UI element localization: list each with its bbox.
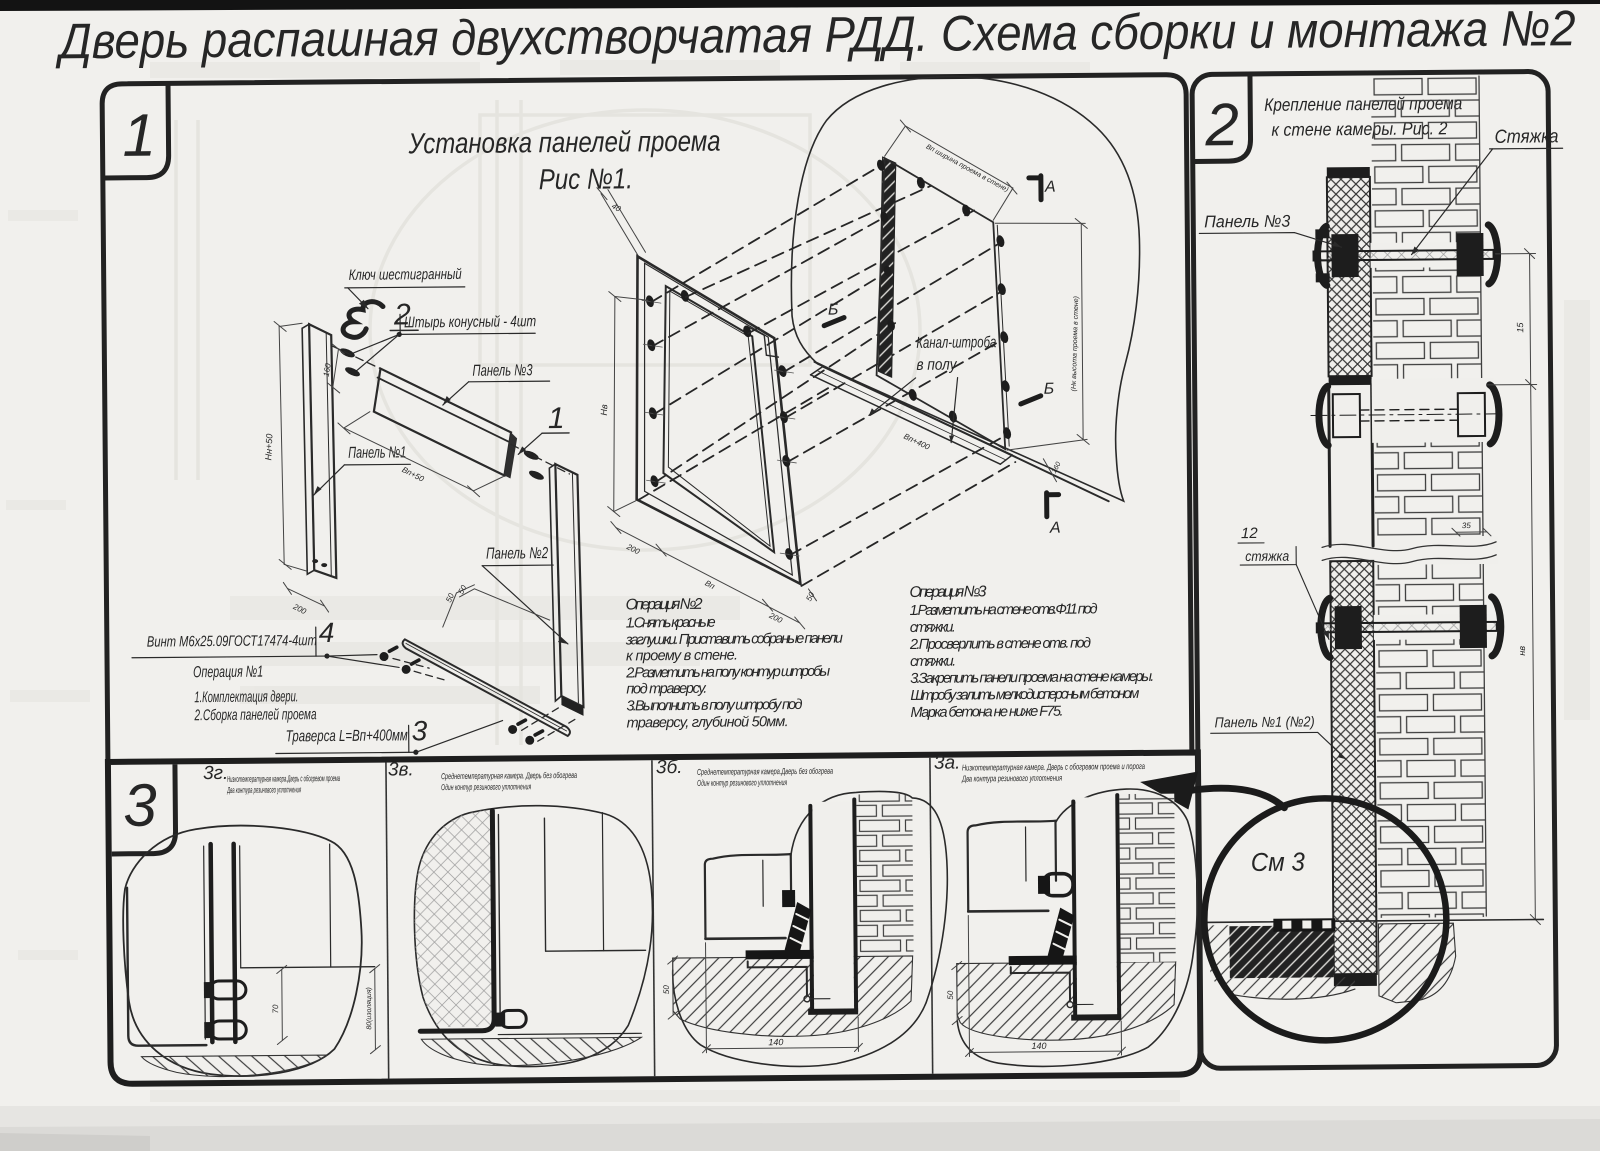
svg-text:Установка панелей проема: Установка панелей проема xyxy=(408,126,721,161)
svg-text:3в.: 3в. xyxy=(388,759,414,780)
svg-text:стяжки.: стяжки. xyxy=(910,654,956,670)
svg-text:Низкотемпературная камера. Две: Низкотемпературная камера. Дверь с обогр… xyxy=(962,761,1145,773)
svg-text:3.Закрепить панели проема на с: 3.Закрепить панели проема на стене камер… xyxy=(910,669,1154,687)
svg-text:Панель №3: Панель №3 xyxy=(1204,212,1291,232)
svg-text:Панель №2: Панель №2 xyxy=(486,545,548,563)
svg-text:Штробу залить мелкодисперсным: Штробу залить мелкодисперсным бетоном xyxy=(910,686,1139,704)
svg-text:4: 4 xyxy=(319,617,335,648)
svg-text:Панель №1: Панель №1 xyxy=(348,444,406,462)
svg-text:Марка бетона не ниже F75.: Марка бетона не ниже F75. xyxy=(910,704,1063,721)
svg-text:Вп ширина проема в стене): Вп ширина проема в стене) xyxy=(925,143,1010,193)
svg-text:А: А xyxy=(1044,179,1056,196)
svg-text:под траверсу.: под траверсу. xyxy=(626,681,707,698)
svg-text:1: 1 xyxy=(122,102,156,169)
svg-text:3б.: 3б. xyxy=(656,757,683,778)
svg-text:стяжка: стяжка xyxy=(1245,548,1289,564)
svg-text:Б: Б xyxy=(828,302,839,319)
svg-text:Панель №3: Панель №3 xyxy=(472,362,532,380)
svg-text:200: 200 xyxy=(767,611,784,626)
svg-text:Вп: Вп xyxy=(703,579,716,592)
svg-text:Низкотемпературная камера.Двер: Низкотемпературная камера.Дверь с обогре… xyxy=(227,773,340,784)
svg-text:в полу: в полу xyxy=(916,357,957,374)
svg-text:Два контура резинового уплотне: Два контура резинового уплотнения xyxy=(961,773,1062,784)
svg-text:Вп+50: Вп+50 xyxy=(400,465,425,484)
svg-text:Операция №3: Операция №3 xyxy=(909,583,987,601)
svg-text:Стяжка: Стяжка xyxy=(1494,126,1558,148)
svg-text:2.Просверлить в стене отв. п: 2.Просверлить в стене отв. под xyxy=(909,635,1091,653)
svg-text:70: 70 xyxy=(271,1004,280,1014)
svg-text:А: А xyxy=(1049,520,1061,537)
svg-text:См 3: См 3 xyxy=(1251,847,1306,877)
svg-text:Операция №1: Операция №1 xyxy=(193,664,263,682)
svg-text:Нн+50: Нн+50 xyxy=(263,433,274,460)
svg-text:Канал-штроба: Канал-штроба xyxy=(916,334,996,352)
svg-text:35: 35 xyxy=(1462,521,1472,530)
svg-text:Среднетемпературная камера. Дв: Среднетемпературная камера. Дверь без об… xyxy=(441,770,577,781)
svg-text:Два контура резинового уплотне: Два контура резинового уплотнения xyxy=(227,784,302,795)
svg-text:Вп+400: Вп+400 xyxy=(902,432,931,452)
svg-text:заглушки. Приставить собраные: заглушки. Приставить собраные панели xyxy=(625,631,843,649)
svg-text:1.Комплектация двери.: 1.Комплектация двери. xyxy=(194,688,298,706)
svg-text:140: 140 xyxy=(1031,1041,1046,1051)
svg-text:2.Разметить на полу контур штр: 2.Разметить на полу контур штробы xyxy=(625,664,830,682)
svg-text:50: 50 xyxy=(804,590,816,603)
svg-text:Штырь конусный - 4шт: Штырь конусный - 4шт xyxy=(404,313,536,331)
svg-text:80(изоляция): 80(изоляция) xyxy=(366,987,373,1030)
svg-text:Панель №1 (№2): Панель №1 (№2) xyxy=(1215,714,1315,731)
svg-text:нв: нв xyxy=(1517,646,1527,656)
svg-text:1: 1 xyxy=(548,402,565,435)
svg-text:2: 2 xyxy=(1204,91,1239,158)
svg-text:2.Сборка панелей проема: 2.Сборка панелей проема xyxy=(194,706,317,724)
svg-text:3.Выполнить в полу штробу под: 3.Выполнить в полу штробу под xyxy=(626,697,802,715)
svg-text:к проему в стене.: к проему в стене. xyxy=(626,647,738,664)
svg-text:Винт М6х25.09ГОСТ17474-4шт: Винт М6х25.09ГОСТ17474-4шт xyxy=(147,632,317,650)
svg-text:Операция №2: Операция №2 xyxy=(625,596,703,614)
svg-text:50: 50 xyxy=(946,990,955,1000)
svg-text:Среднетемпературная камера.Две: Среднетемпературная камера.Дверь без обо… xyxy=(697,766,833,777)
svg-text:15: 15 xyxy=(1515,322,1525,333)
svg-text:200: 200 xyxy=(624,542,641,557)
svg-text:Б: Б xyxy=(1044,381,1055,398)
svg-text:Один контур резинового уплотне: Один контур резинового уплотнения xyxy=(441,781,531,792)
svg-text:Дверь распашная двухстворчатая: Дверь распашная двухстворчатая РДД. Схем… xyxy=(55,0,1576,69)
svg-text:3г.: 3г. xyxy=(203,763,228,784)
svg-text:1.Разметить на стене отв.Ф11 п: 1.Разметить на стене отв.Ф11 под xyxy=(910,601,1098,619)
svg-text:1.Снять красные: 1.Снять красные xyxy=(626,615,716,632)
svg-text:стяжки.: стяжки. xyxy=(910,620,956,636)
svg-text:50: 50 xyxy=(456,583,468,596)
svg-text:Траверса L=Вп+400мм: Траверса L=Вп+400мм xyxy=(286,727,408,745)
svg-text:12: 12 xyxy=(1241,525,1258,542)
svg-text:140: 140 xyxy=(768,1037,783,1047)
svg-text:Ключ шестигранный: Ключ шестигранный xyxy=(349,266,463,284)
svg-text:Рис №1.: Рис №1. xyxy=(539,163,633,196)
svg-text:3а.: 3а. xyxy=(934,753,961,774)
svg-text:3: 3 xyxy=(123,772,157,839)
svg-text:Нв: Нв xyxy=(599,404,609,416)
svg-text:траверсу, глубиной 50мм.: траверсу, глубиной 50мм. xyxy=(627,714,789,731)
svg-text:50: 50 xyxy=(662,985,671,995)
svg-text:(Нк высота проема в стене): (Нк высота проема в стене) xyxy=(1071,296,1080,392)
svg-text:Один контур резинового уплотне: Один контур резинового уплотнения xyxy=(697,777,787,788)
svg-text:3: 3 xyxy=(412,715,428,746)
